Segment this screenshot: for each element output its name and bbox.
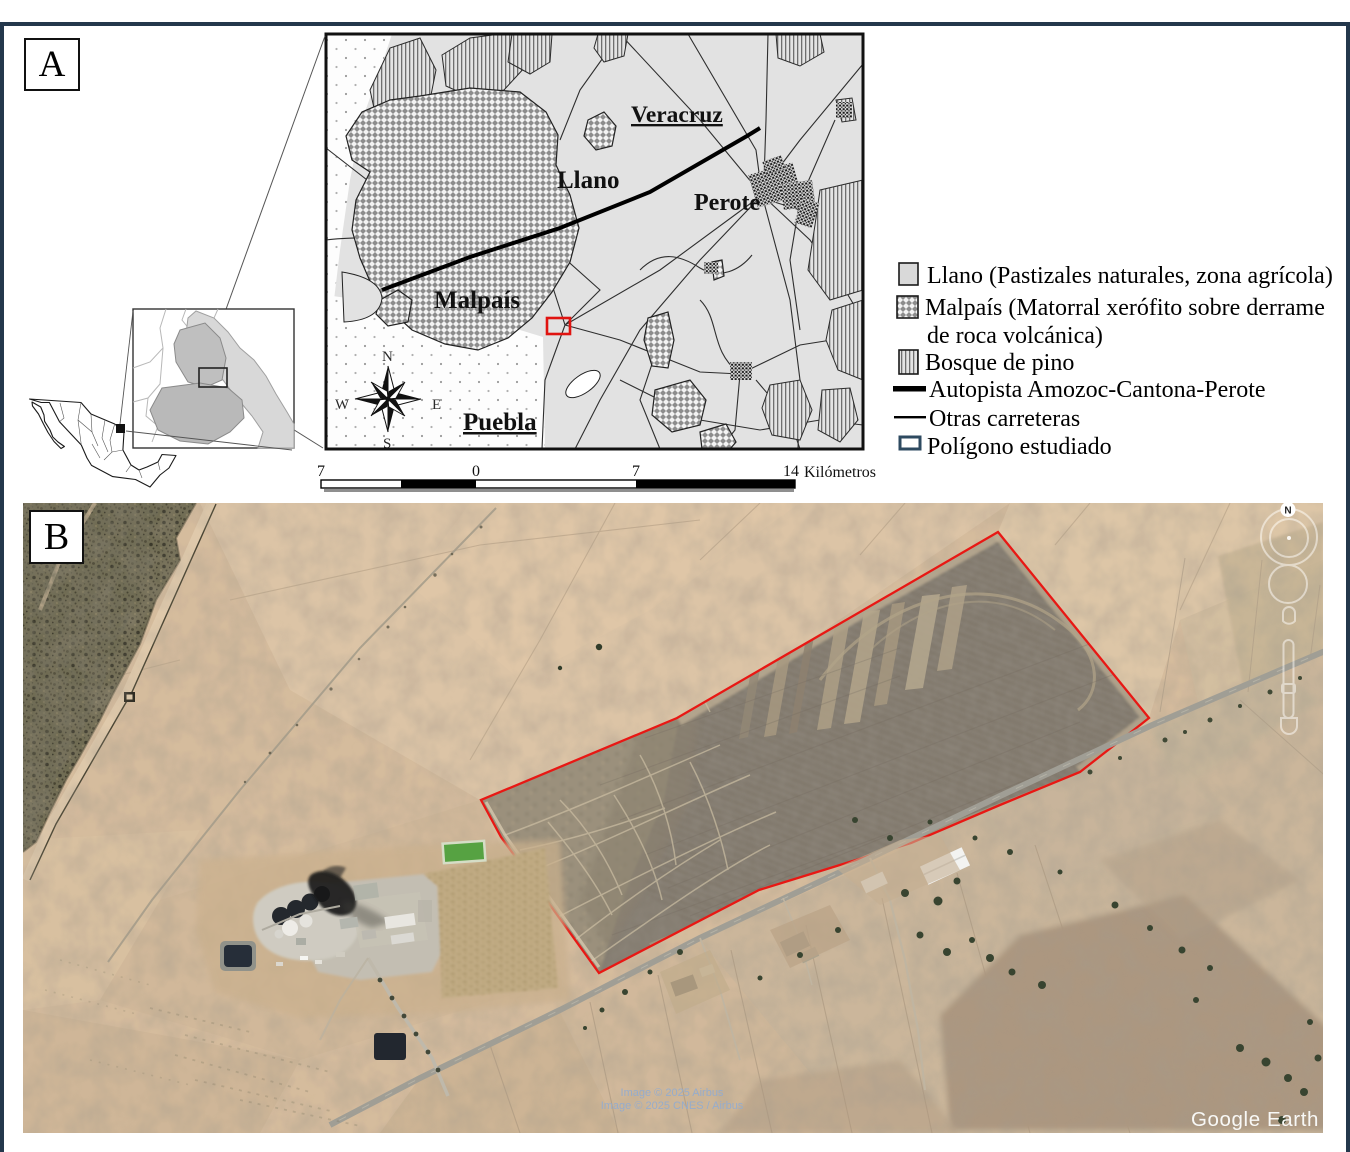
svg-text:E: E — [432, 397, 441, 413]
svg-text:Perote: Perote — [694, 190, 761, 216]
svg-text:Llano (Pastizales naturales, z: Llano (Pastizales naturales, zona agríco… — [927, 263, 1333, 289]
svg-text:Malpaís (Matorral xerófito sob: Malpaís (Matorral xerófito sobre derrame — [925, 295, 1325, 321]
svg-text:de roca volcánica): de roca volcánica) — [927, 323, 1103, 349]
svg-text:7: 7 — [317, 463, 325, 480]
svg-text:0: 0 — [472, 463, 480, 480]
svg-text:Otras carreteras: Otras carreteras — [929, 406, 1080, 432]
svg-text:Image © 2025 Airbus: Image © 2025 Airbus — [621, 1087, 724, 1099]
svg-text:Autopista Amozoc-Cantona-Perot: Autopista Amozoc-Cantona-Perote — [929, 377, 1266, 403]
svg-text:W: W — [335, 397, 350, 413]
svg-text:7: 7 — [632, 463, 640, 480]
svg-text:Puebla: Puebla — [463, 409, 537, 436]
svg-text:Image © 2025 CNES / Airbus: Image © 2025 CNES / Airbus — [601, 1100, 744, 1112]
svg-text:Malpaís: Malpaís — [434, 287, 520, 314]
svg-text:Llano: Llano — [557, 167, 620, 194]
svg-text:Veracruz: Veracruz — [631, 102, 723, 128]
svg-text:N: N — [382, 349, 393, 365]
svg-text:N: N — [1284, 506, 1291, 517]
svg-text:14: 14 — [783, 463, 799, 480]
svg-text:Bosque de pino: Bosque de pino — [925, 350, 1074, 376]
svg-text:Polígono estudiado: Polígono estudiado — [927, 434, 1112, 460]
svg-text:Kilómetros: Kilómetros — [804, 464, 876, 481]
svg-text:Google Earth: Google Earth — [1191, 1108, 1319, 1131]
